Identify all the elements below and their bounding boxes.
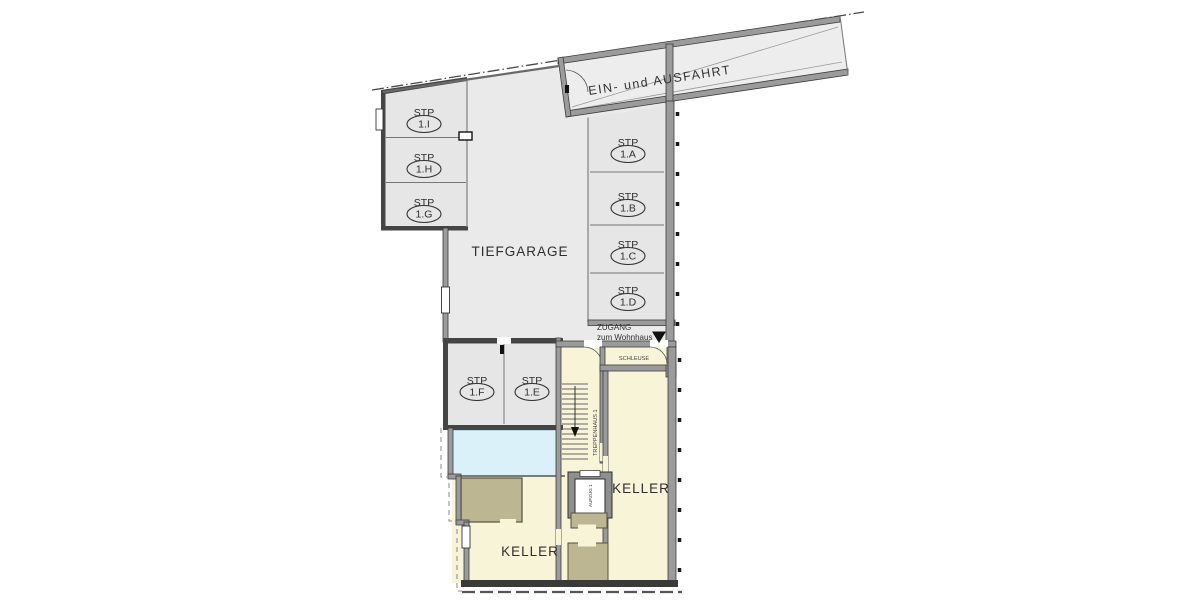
door-opening	[497, 337, 511, 344]
cellar-compartment	[568, 543, 608, 581]
parking-block-middle	[443, 337, 563, 430]
wall-niche	[459, 132, 472, 140]
stall-number: 1.C	[620, 251, 637, 263]
door-opening	[578, 525, 596, 530]
stall-number: 1.H	[416, 164, 432, 176]
window-opening	[442, 287, 450, 313]
wall-east-lower	[668, 347, 676, 586]
stall-code: STP	[522, 375, 542, 387]
door-leaf-icon	[565, 85, 569, 93]
stall-number: 1.D	[620, 297, 637, 309]
floorplan-drawing: EIN- und AUSFAHRT	[0, 0, 1200, 600]
elevator-label: AUFZUG 1	[588, 484, 593, 507]
wall	[381, 226, 468, 231]
stairwell-label: TREPPENHAUS 1	[593, 409, 599, 456]
stall-number: 1.I	[418, 119, 430, 131]
ramp-entrance-exit: EIN- und AUSFAHRT	[558, 16, 848, 117]
wall-west	[443, 228, 448, 342]
stall-code: STP	[414, 107, 434, 119]
keller-left-label: KELLER	[501, 544, 559, 559]
wall-east	[666, 101, 674, 347]
stall-number: 1.B	[620, 203, 636, 215]
wall	[443, 425, 563, 430]
stall-number: 1.E	[524, 387, 540, 399]
wall-pier	[500, 345, 504, 354]
elevator-door	[580, 471, 600, 477]
wall	[443, 338, 448, 430]
stall-code: STP	[618, 191, 638, 203]
stall-code: STP	[618, 137, 638, 149]
garage-label: TIEFGARAGE	[471, 244, 568, 259]
wall-south	[461, 580, 678, 587]
stall-code: STP	[414, 152, 434, 164]
window-opening	[376, 109, 383, 130]
wall	[456, 476, 461, 524]
light-well-area	[450, 430, 561, 476]
keller-right-label: KELLER	[612, 481, 670, 496]
stall-number: 1.G	[416, 209, 433, 221]
door-opening	[556, 529, 561, 545]
stall-code: STP	[618, 239, 638, 251]
stall-code: STP	[414, 197, 434, 209]
wall-schleuse-south	[600, 365, 676, 371]
cellar-compartment	[461, 478, 522, 522]
schleuse-label: SCHLEUSE	[619, 356, 649, 362]
stall-number: 1.A	[620, 149, 636, 161]
door-opening	[578, 543, 596, 547]
window-opening	[462, 526, 470, 548]
floorplan-canvas: EIN- und AUSFAHRT	[0, 0, 1200, 600]
stall-code: STP	[618, 285, 638, 297]
stall-number: 1.F	[469, 387, 484, 399]
access-label-line1: ZUGANG	[597, 323, 631, 332]
door-opening	[500, 519, 516, 524]
wall	[448, 428, 453, 478]
keller-right-floor	[605, 371, 668, 583]
access-label-line2: zum Wohnhaus	[597, 333, 652, 342]
stall-code: STP	[467, 375, 487, 387]
elevator: AUFZUG 1	[568, 471, 612, 519]
